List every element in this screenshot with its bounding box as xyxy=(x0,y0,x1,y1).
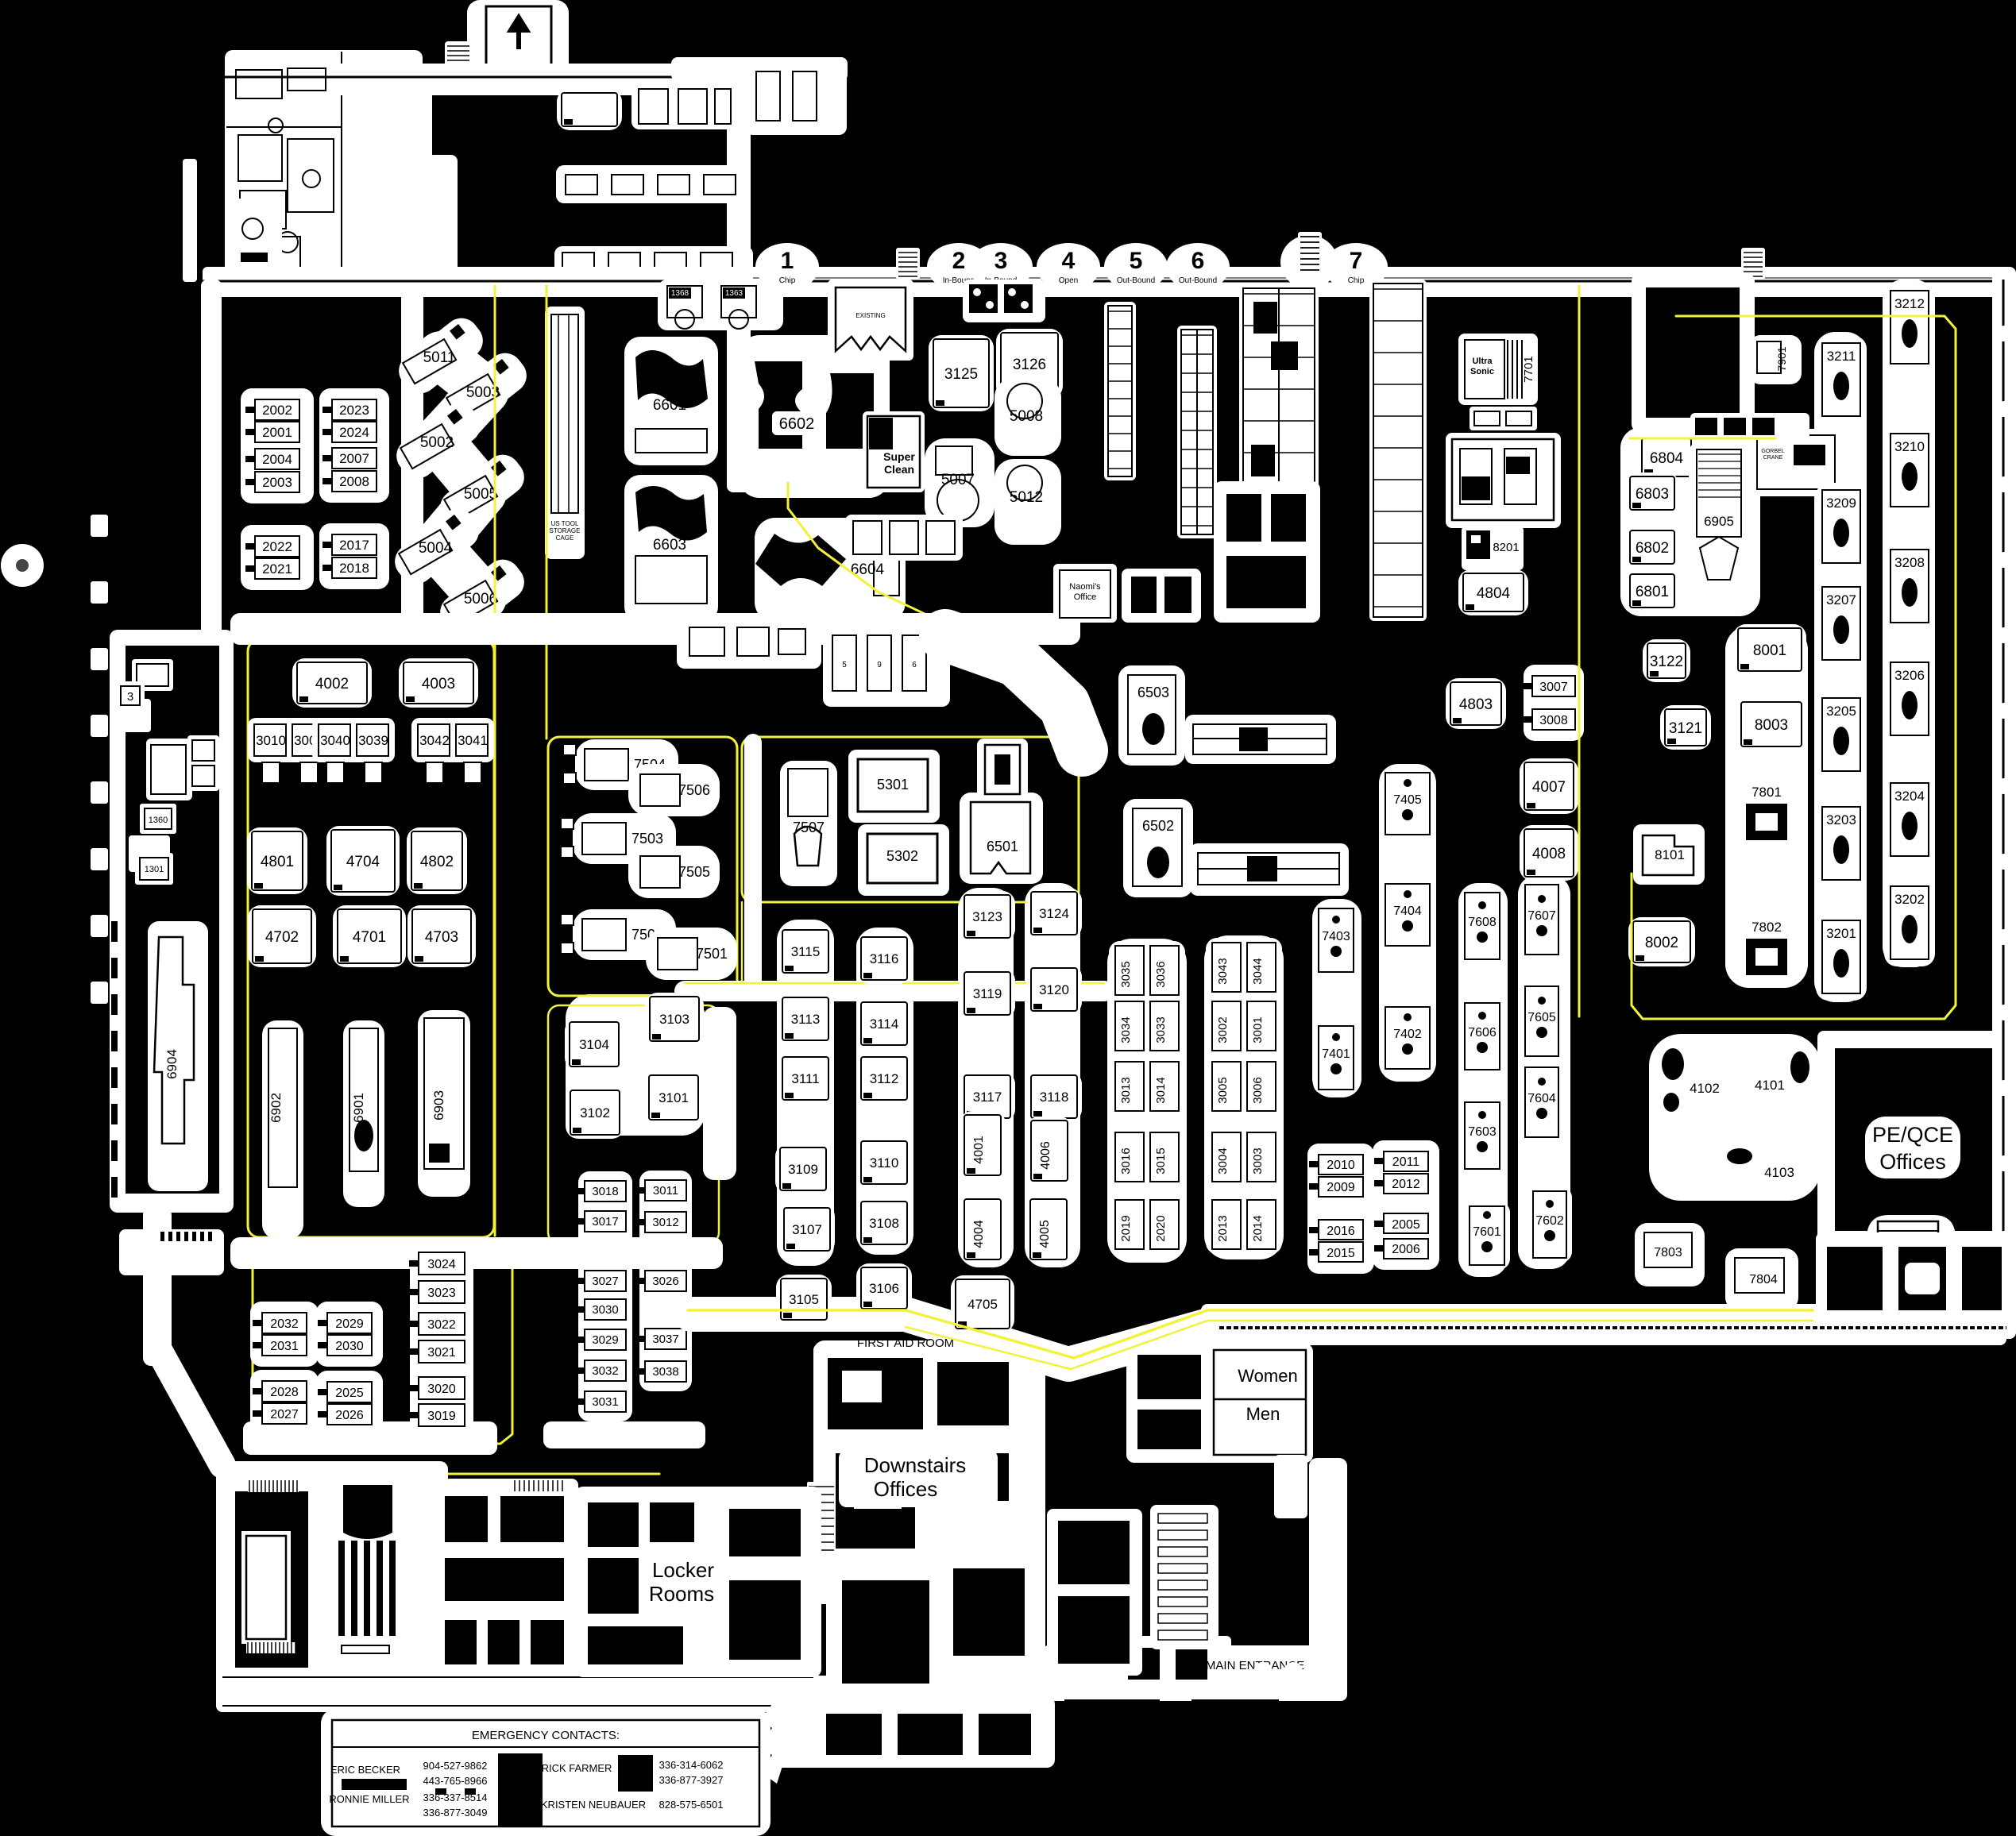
svg-text:3126: 3126 xyxy=(1013,357,1046,373)
svg-text:7602: 7602 xyxy=(1535,1214,1564,1228)
svg-text:Ultra: Ultra xyxy=(1472,357,1493,366)
svg-text:8002: 8002 xyxy=(1645,935,1678,951)
svg-text:2004: 2004 xyxy=(262,452,292,467)
svg-text:Office: Office xyxy=(1074,592,1097,602)
svg-text:2021: 2021 xyxy=(262,561,292,577)
svg-text:3203: 3203 xyxy=(1826,812,1856,827)
svg-text:2020: 2020 xyxy=(1154,1215,1168,1241)
svg-text:3013: 3013 xyxy=(1119,1077,1133,1103)
svg-text:2009: 2009 xyxy=(1327,1181,1355,1194)
svg-text:2005: 2005 xyxy=(1392,1218,1420,1232)
svg-text:3002: 3002 xyxy=(1216,1016,1230,1043)
svg-text:2025: 2025 xyxy=(335,1387,364,1400)
svg-text:3040: 3040 xyxy=(320,733,350,748)
svg-text:7701: 7701 xyxy=(1522,356,1535,382)
svg-text:3041: 3041 xyxy=(458,733,488,748)
svg-text:7507: 7507 xyxy=(793,820,825,835)
svg-text:7405: 7405 xyxy=(1393,793,1422,807)
svg-text:2027: 2027 xyxy=(270,1408,299,1421)
svg-text:Clean: Clean xyxy=(884,463,914,476)
svg-text:4007: 4007 xyxy=(1532,779,1566,796)
svg-text:6801: 6801 xyxy=(1636,584,1669,600)
svg-text:Out-Bound: Out-Bound xyxy=(1117,276,1155,285)
svg-text:ERIC BECKER: ERIC BECKER xyxy=(330,1764,400,1776)
svg-text:443-765-8966: 443-765-8966 xyxy=(423,1775,488,1787)
svg-text:4703: 4703 xyxy=(425,929,458,946)
svg-text:3121: 3121 xyxy=(1669,720,1702,737)
svg-text:3114: 3114 xyxy=(870,1016,899,1032)
svg-text:EXISTING: EXISTING xyxy=(855,312,885,319)
svg-text:4006: 4006 xyxy=(1039,1141,1052,1170)
svg-text:3107: 3107 xyxy=(792,1222,822,1237)
svg-text:1368: 1368 xyxy=(671,289,689,298)
svg-text:2011: 2011 xyxy=(1392,1155,1420,1169)
svg-text:4801: 4801 xyxy=(261,854,294,870)
svg-text:4004: 4004 xyxy=(972,1220,986,1248)
svg-text:7803: 7803 xyxy=(1654,1246,1682,1259)
svg-text:KRISTEN NEUBAUER: KRISTEN NEUBAUER xyxy=(541,1799,646,1811)
svg-text:3034: 3034 xyxy=(1119,1016,1133,1043)
svg-text:2030: 2030 xyxy=(335,1340,364,1353)
svg-text:7901: 7901 xyxy=(1775,346,1788,371)
svg-text:3006: 3006 xyxy=(1251,1077,1265,1103)
svg-text:4003: 4003 xyxy=(422,676,455,692)
svg-text:3104: 3104 xyxy=(579,1037,609,1052)
svg-text:336-337-8514: 336-337-8514 xyxy=(423,1792,488,1803)
svg-text:6905: 6905 xyxy=(1704,514,1734,529)
svg-text:3113: 3113 xyxy=(791,1012,821,1027)
svg-text:3029: 3029 xyxy=(592,1333,618,1347)
svg-text:4803: 4803 xyxy=(1459,696,1493,713)
svg-text:3023: 3023 xyxy=(427,1286,456,1300)
svg-text:7402: 7402 xyxy=(1393,1028,1422,1041)
svg-text:4804: 4804 xyxy=(1477,585,1511,602)
svg-text:Women: Women xyxy=(1238,1366,1297,1386)
svg-text:Super: Super xyxy=(883,450,915,463)
svg-text:3209: 3209 xyxy=(1826,496,1856,511)
svg-text:3019: 3019 xyxy=(427,1410,456,1423)
svg-text:Downstairs: Downstairs xyxy=(864,1453,967,1477)
svg-text:3125: 3125 xyxy=(944,366,978,383)
svg-text:6: 6 xyxy=(912,661,917,669)
svg-text:5: 5 xyxy=(842,661,847,669)
svg-text:Men: Men xyxy=(1246,1404,1280,1424)
svg-text:3: 3 xyxy=(127,690,133,704)
svg-text:3123: 3123 xyxy=(972,909,1002,924)
svg-text:336-877-3049: 336-877-3049 xyxy=(423,1807,488,1819)
svg-text:3042: 3042 xyxy=(419,733,450,748)
svg-text:3026: 3026 xyxy=(652,1275,678,1288)
svg-text:6502: 6502 xyxy=(1142,818,1174,834)
svg-text:3105: 3105 xyxy=(789,1292,819,1307)
svg-text:3033: 3033 xyxy=(1154,1016,1168,1043)
svg-text:4101: 4101 xyxy=(1755,1078,1785,1093)
svg-text:5007: 5007 xyxy=(941,472,975,488)
svg-text:8003: 8003 xyxy=(1755,717,1788,734)
svg-text:5005: 5005 xyxy=(464,486,497,503)
svg-text:3039: 3039 xyxy=(358,733,388,748)
svg-text:3202: 3202 xyxy=(1894,892,1925,907)
svg-text:6804: 6804 xyxy=(1650,450,1684,467)
svg-text:Locker: Locker xyxy=(652,1558,714,1582)
svg-text:4705: 4705 xyxy=(967,1297,998,1312)
svg-text:3024: 3024 xyxy=(427,1258,456,1271)
svg-text:4103: 4103 xyxy=(1764,1165,1794,1180)
svg-text:3012: 3012 xyxy=(652,1216,678,1229)
svg-text:3111: 3111 xyxy=(791,1071,819,1086)
svg-text:4005: 4005 xyxy=(1038,1220,1052,1248)
svg-text:5012: 5012 xyxy=(1010,489,1043,506)
svg-text:2015: 2015 xyxy=(1327,1247,1355,1260)
svg-text:2006: 2006 xyxy=(1392,1243,1420,1256)
svg-text:3117: 3117 xyxy=(973,1090,1002,1105)
svg-text:2022: 2022 xyxy=(262,539,292,554)
svg-text:3109: 3109 xyxy=(788,1162,818,1177)
svg-text:3103: 3103 xyxy=(659,1012,689,1027)
svg-text:1360: 1360 xyxy=(149,816,168,825)
svg-text:1301: 1301 xyxy=(145,865,164,874)
svg-text:6501: 6501 xyxy=(987,839,1018,854)
svg-text:3043: 3043 xyxy=(1216,958,1230,984)
svg-text:5301: 5301 xyxy=(877,777,909,793)
svg-text:8201: 8201 xyxy=(1493,541,1519,554)
svg-text:2014: 2014 xyxy=(1251,1215,1265,1241)
svg-text:3007: 3007 xyxy=(1539,681,1568,694)
svg-text:6: 6 xyxy=(1191,248,1205,274)
svg-text:5006: 5006 xyxy=(464,591,497,607)
svg-text:3120: 3120 xyxy=(1039,982,1069,997)
svg-text:6802: 6802 xyxy=(1636,540,1669,557)
svg-text:7: 7 xyxy=(1350,248,1363,274)
svg-text:3207: 3207 xyxy=(1826,592,1856,607)
svg-text:3031: 3031 xyxy=(592,1395,618,1409)
svg-text:3102: 3102 xyxy=(580,1105,610,1120)
svg-text:2013: 2013 xyxy=(1216,1215,1230,1241)
svg-text:5004: 5004 xyxy=(419,540,453,557)
svg-text:3212: 3212 xyxy=(1894,296,1925,311)
svg-text:2010: 2010 xyxy=(1327,1159,1355,1172)
svg-text:GORBEL: GORBEL xyxy=(1761,449,1784,454)
svg-text:RONNIE MILLER: RONNIE MILLER xyxy=(329,1793,409,1805)
svg-text:3004: 3004 xyxy=(1216,1147,1230,1174)
svg-text:6601: 6601 xyxy=(653,397,686,414)
svg-text:3204: 3204 xyxy=(1894,789,1925,804)
svg-text:3124: 3124 xyxy=(1039,906,1069,921)
svg-text:3: 3 xyxy=(994,248,1008,274)
svg-text:2019: 2019 xyxy=(1119,1215,1133,1241)
svg-text:2026: 2026 xyxy=(335,1409,364,1422)
svg-text:US TOOL: US TOOL xyxy=(551,520,579,527)
svg-text:3211: 3211 xyxy=(1827,349,1856,364)
svg-text:336-877-3927: 336-877-3927 xyxy=(659,1774,724,1786)
svg-text:4: 4 xyxy=(1062,248,1076,274)
svg-text:6603: 6603 xyxy=(653,537,686,553)
svg-text:6803: 6803 xyxy=(1636,486,1669,503)
svg-text:4002: 4002 xyxy=(315,676,349,692)
svg-text:2028: 2028 xyxy=(270,1386,299,1399)
svg-text:7404: 7404 xyxy=(1393,904,1422,918)
svg-text:7804: 7804 xyxy=(1749,1273,1778,1286)
svg-text:828-575-6501: 828-575-6501 xyxy=(659,1799,724,1811)
svg-text:3010: 3010 xyxy=(256,733,286,748)
svg-text:Offices: Offices xyxy=(874,1477,937,1501)
svg-text:3030: 3030 xyxy=(592,1303,618,1317)
svg-text:3208: 3208 xyxy=(1894,555,1925,570)
svg-text:2007: 2007 xyxy=(339,451,369,466)
svg-text:3021: 3021 xyxy=(427,1346,456,1360)
svg-text:Naomi's: Naomi's xyxy=(1069,582,1101,592)
svg-text:3122: 3122 xyxy=(1650,654,1683,670)
svg-text:3032: 3032 xyxy=(592,1364,618,1378)
svg-text:PE/QCE: PE/QCE xyxy=(1872,1123,1953,1147)
svg-text:2016: 2016 xyxy=(1327,1225,1355,1238)
svg-text:4008: 4008 xyxy=(1532,846,1566,862)
svg-text:3112: 3112 xyxy=(870,1071,899,1086)
svg-text:1: 1 xyxy=(781,248,794,274)
svg-text:7604: 7604 xyxy=(1527,1092,1556,1105)
svg-text:5002: 5002 xyxy=(420,434,454,451)
svg-text:2008: 2008 xyxy=(339,474,369,489)
svg-text:7607: 7607 xyxy=(1527,909,1556,923)
svg-text:CRANE: CRANE xyxy=(1763,455,1783,461)
svg-text:7801: 7801 xyxy=(1751,785,1782,800)
svg-text:2018: 2018 xyxy=(339,561,369,576)
svg-text:2031: 2031 xyxy=(270,1340,299,1353)
svg-text:2032: 2032 xyxy=(270,1317,299,1331)
svg-text:3106: 3106 xyxy=(869,1281,899,1296)
svg-text:7802: 7802 xyxy=(1751,920,1782,935)
svg-text:FIRST AID ROOM: FIRST AID ROOM xyxy=(857,1336,954,1350)
svg-text:3119: 3119 xyxy=(973,986,1002,1001)
svg-text:3036: 3036 xyxy=(1154,961,1168,987)
svg-text:3118: 3118 xyxy=(1040,1090,1069,1105)
svg-text:3044: 3044 xyxy=(1251,958,1265,984)
svg-text:3017: 3017 xyxy=(592,1215,618,1228)
svg-text:3015: 3015 xyxy=(1154,1147,1168,1174)
svg-text:7606: 7606 xyxy=(1468,1026,1497,1039)
svg-text:3035: 3035 xyxy=(1119,961,1133,987)
svg-text:7401: 7401 xyxy=(1322,1047,1350,1061)
svg-text:6902: 6902 xyxy=(268,1093,284,1123)
svg-text:5008: 5008 xyxy=(1010,408,1043,425)
svg-text:4102: 4102 xyxy=(1690,1081,1720,1096)
svg-text:904-527-9862: 904-527-9862 xyxy=(423,1760,488,1772)
svg-text:Offices: Offices xyxy=(1879,1150,1946,1174)
svg-text:7403: 7403 xyxy=(1322,930,1350,943)
svg-text:CAGE: CAGE xyxy=(556,534,574,542)
svg-text:Out-Bound: Out-Bound xyxy=(1179,276,1217,285)
svg-text:3027: 3027 xyxy=(592,1275,618,1288)
svg-text:2029: 2029 xyxy=(335,1317,364,1331)
svg-text:3014: 3014 xyxy=(1154,1077,1168,1103)
svg-text:3016: 3016 xyxy=(1119,1147,1133,1174)
svg-text:8101: 8101 xyxy=(1655,847,1685,862)
svg-text:7601: 7601 xyxy=(1473,1225,1501,1239)
svg-text:6503: 6503 xyxy=(1137,685,1169,700)
svg-text:2023: 2023 xyxy=(339,403,369,418)
svg-text:3205: 3205 xyxy=(1826,704,1856,719)
svg-text:4704: 4704 xyxy=(346,854,380,870)
svg-text:8001: 8001 xyxy=(1753,642,1786,659)
svg-text:2: 2 xyxy=(952,248,966,274)
svg-text:7603: 7603 xyxy=(1468,1125,1497,1139)
svg-text:3038: 3038 xyxy=(652,1365,678,1379)
svg-text:2017: 2017 xyxy=(339,538,369,553)
svg-text:STORAGE: STORAGE xyxy=(550,527,581,534)
svg-text:2003: 2003 xyxy=(262,475,292,490)
svg-text:6903: 6903 xyxy=(431,1090,446,1120)
svg-text:3008: 3008 xyxy=(1539,714,1568,727)
svg-text:2024: 2024 xyxy=(339,425,369,440)
svg-text:Rooms: Rooms xyxy=(649,1582,714,1606)
svg-text:3020: 3020 xyxy=(427,1383,456,1396)
svg-text:4802: 4802 xyxy=(420,854,454,870)
svg-text:3110: 3110 xyxy=(870,1155,899,1171)
svg-text:3018: 3018 xyxy=(592,1185,618,1198)
svg-text:3011: 3011 xyxy=(653,1184,678,1198)
svg-text:3201: 3201 xyxy=(1826,926,1856,941)
svg-text:3022: 3022 xyxy=(427,1318,456,1332)
svg-text:336-314-6062: 336-314-6062 xyxy=(659,1759,724,1771)
svg-text:6602: 6602 xyxy=(779,415,815,433)
svg-text:3108: 3108 xyxy=(869,1216,899,1231)
svg-text:7605: 7605 xyxy=(1527,1011,1556,1024)
svg-text:7501: 7501 xyxy=(696,946,728,962)
svg-text:4001: 4001 xyxy=(972,1136,986,1164)
svg-text:EMERGENCY CONTACTS:: EMERGENCY CONTACTS: xyxy=(472,1729,620,1742)
svg-text:7503: 7503 xyxy=(631,831,663,847)
svg-text:Sonic: Sonic xyxy=(1470,367,1494,376)
svg-text:RICK FARMER: RICK FARMER xyxy=(542,1762,612,1774)
svg-text:5302: 5302 xyxy=(886,848,918,864)
svg-text:2012: 2012 xyxy=(1392,1178,1420,1191)
svg-text:5011: 5011 xyxy=(423,349,456,366)
svg-text:3116: 3116 xyxy=(870,951,899,966)
svg-text:3206: 3206 xyxy=(1894,668,1925,683)
svg-text:6901: 6901 xyxy=(351,1093,366,1123)
svg-text:2001: 2001 xyxy=(262,425,292,440)
svg-text:7505: 7505 xyxy=(678,864,710,880)
svg-text:3037: 3037 xyxy=(652,1333,678,1346)
svg-text:3101: 3101 xyxy=(658,1090,689,1105)
svg-text:3003: 3003 xyxy=(1251,1147,1265,1174)
svg-text:3115: 3115 xyxy=(791,944,821,959)
svg-text:5: 5 xyxy=(1130,248,1143,274)
svg-text:4701: 4701 xyxy=(353,929,386,946)
svg-text:3210: 3210 xyxy=(1894,439,1925,454)
svg-text:Open: Open xyxy=(1059,276,1078,285)
svg-text:6904: 6904 xyxy=(164,1049,180,1079)
svg-text:7506: 7506 xyxy=(678,782,710,798)
svg-text:4702: 4702 xyxy=(265,929,299,946)
svg-text:7608: 7608 xyxy=(1468,916,1497,929)
svg-text:2002: 2002 xyxy=(262,403,292,418)
svg-text:1363: 1363 xyxy=(725,289,743,298)
svg-text:3001: 3001 xyxy=(1251,1016,1265,1043)
svg-text:Chip: Chip xyxy=(1348,276,1365,285)
svg-text:9: 9 xyxy=(877,661,882,669)
svg-text:3005: 3005 xyxy=(1216,1077,1230,1103)
